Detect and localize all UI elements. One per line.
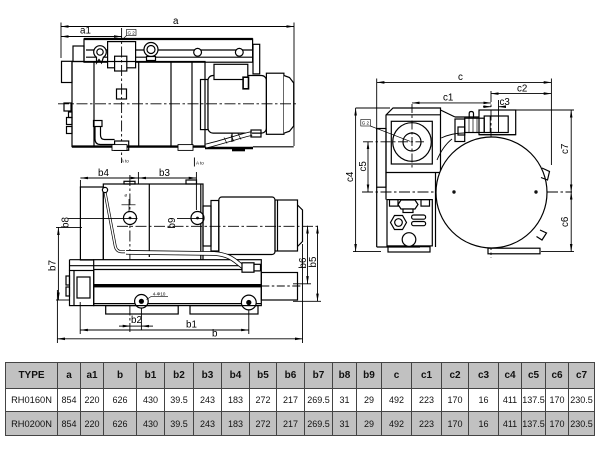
svg-text:b4: b4 xyxy=(98,168,109,179)
svg-text:c2: c2 xyxy=(517,83,527,94)
svg-text:b9: b9 xyxy=(167,218,178,229)
svg-text:G 2: G 2 xyxy=(128,30,136,35)
svg-text:b3: b3 xyxy=(159,168,170,179)
svg-text:c1: c1 xyxy=(443,93,453,104)
svg-text:b2: b2 xyxy=(131,315,142,326)
svg-text:a: a xyxy=(173,16,179,27)
svg-text:b5: b5 xyxy=(308,256,319,267)
svg-text:A to: A to xyxy=(121,159,129,164)
svg-text:a1: a1 xyxy=(80,26,91,37)
svg-text:4-Φ10: 4-Φ10 xyxy=(153,291,166,296)
svg-text:c4: c4 xyxy=(345,171,356,182)
svg-text:c6: c6 xyxy=(560,216,571,227)
svg-text:G 2: G 2 xyxy=(362,121,370,126)
svg-text:A to: A to xyxy=(196,161,204,166)
svg-text:b7: b7 xyxy=(48,260,59,271)
svg-text:c3: c3 xyxy=(500,97,511,108)
svg-text:b1: b1 xyxy=(186,320,197,331)
svg-text:b: b xyxy=(212,328,218,339)
svg-text:c7: c7 xyxy=(560,144,571,154)
svg-text:c5: c5 xyxy=(358,161,369,172)
svg-text:b8: b8 xyxy=(61,217,72,228)
svg-text:⌀: ⌀ xyxy=(125,193,128,198)
svg-text:c: c xyxy=(458,72,463,83)
